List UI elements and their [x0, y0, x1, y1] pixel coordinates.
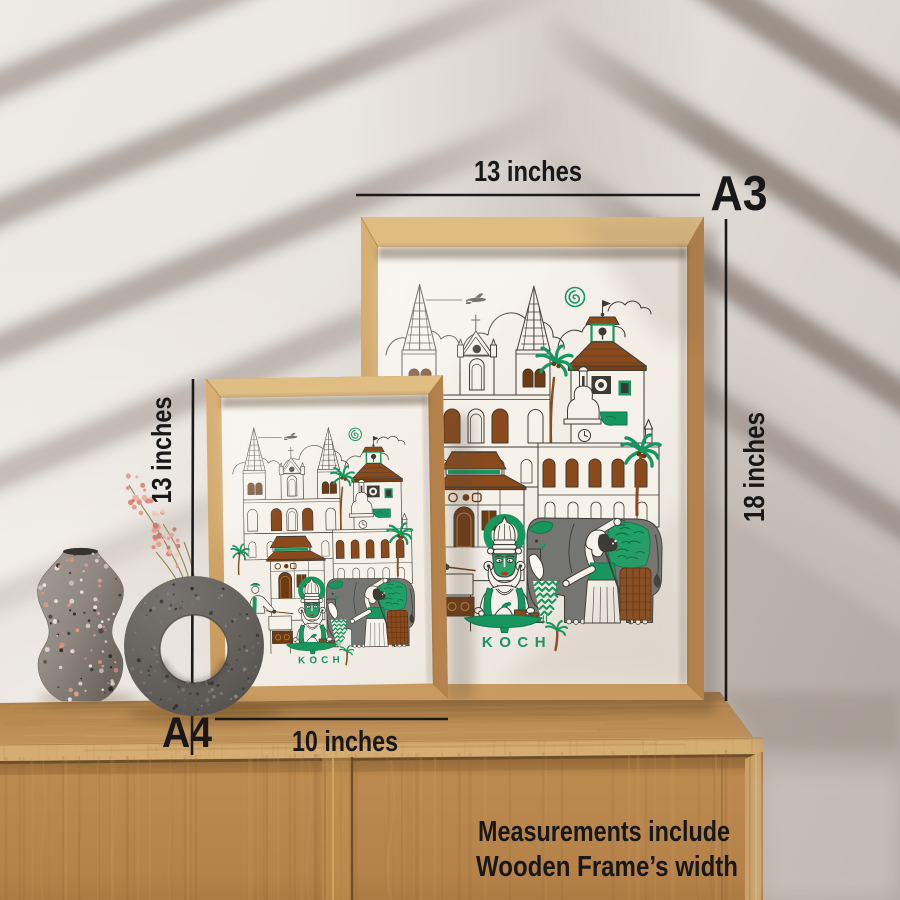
svg-text:13 inches: 13 inches: [146, 397, 177, 504]
svg-text:Wooden Frame’s width: Wooden Frame’s width: [476, 851, 738, 883]
svg-text:13 inches: 13 inches: [474, 156, 582, 188]
svg-text:A3: A3: [711, 167, 768, 221]
svg-text:A4: A4: [162, 709, 212, 757]
svg-text:18 inches: 18 inches: [739, 412, 771, 522]
svg-text:10 inches: 10 inches: [292, 726, 398, 758]
svg-text:Measurements include: Measurements include: [478, 816, 730, 848]
